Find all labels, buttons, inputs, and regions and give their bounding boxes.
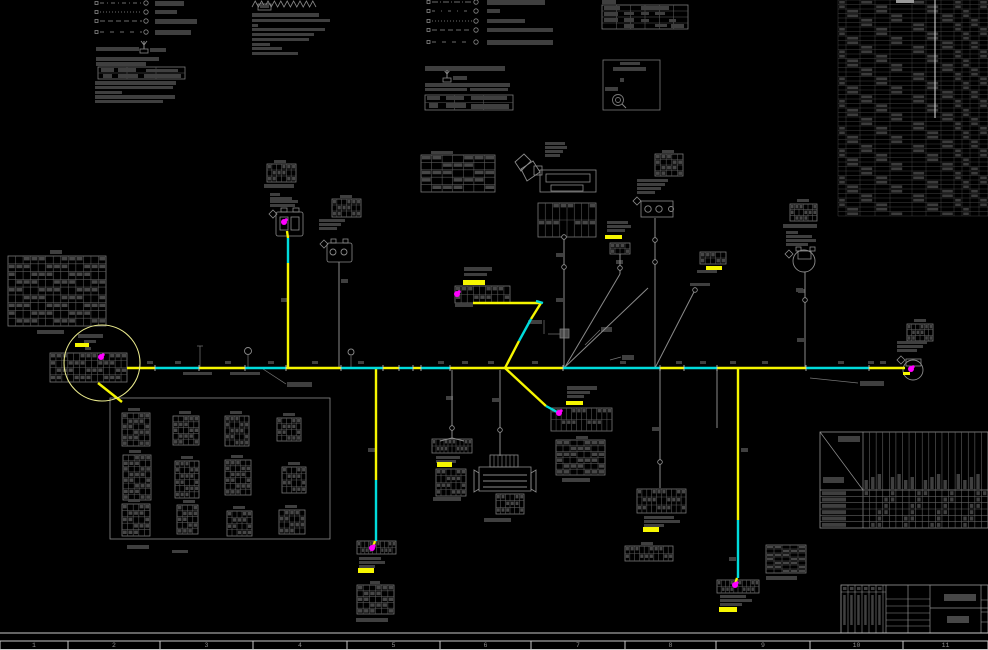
wire-list-cell-text	[861, 118, 872, 121]
pin-table-767-cell-text	[775, 554, 781, 556]
connector-strip-452-cell-text	[469, 440, 471, 444]
relay-grid-283-cell-text	[273, 177, 276, 181]
pin-table-left-cell-text	[84, 265, 90, 269]
pin-matrix-cell	[944, 498, 947, 502]
inline-conn-3-cell-text	[231, 417, 234, 421]
pin-matrix-header-text	[937, 474, 940, 489]
table-556-cell-text	[599, 453, 604, 457]
connector-strip-372-cell-text	[385, 548, 387, 552]
text-redaction-bar	[786, 231, 798, 234]
wire-list-cell-text	[891, 140, 902, 143]
text-redaction-bar	[607, 225, 631, 228]
connector-grid-805-cell-text	[809, 211, 812, 215]
wire-list-cell-text	[891, 37, 902, 40]
wire-list-cell-text	[891, 190, 902, 193]
scale-number: 3	[205, 642, 209, 649]
wire-list-cell-text	[913, 145, 924, 148]
pin-matrix-cell	[891, 498, 894, 502]
pin-matrix-cell	[937, 523, 940, 527]
connector-table-top-cell-text	[432, 171, 441, 175]
pin-matrix-row-label	[822, 504, 846, 508]
wire-list-cell-text	[942, 19, 953, 22]
inline-conn-11-cell-text	[243, 531, 246, 535]
inline-conn-11-cell-text	[238, 518, 241, 522]
title-block-vertical-text	[857, 595, 860, 625]
inline-conn-3-cell-text	[236, 429, 239, 433]
text-redaction-bar	[567, 391, 590, 394]
connector-table-top-cell-text	[475, 156, 484, 160]
connector-table-top-cell-text	[454, 163, 463, 167]
table-556-cell-text	[578, 464, 583, 468]
wire-list-cell-text	[847, 208, 858, 211]
inline-conn-4-cell-text	[288, 425, 291, 429]
connector-grid-805-cell-text	[791, 205, 794, 209]
junction-node	[562, 265, 567, 270]
main-connector-left-cell-text	[116, 376, 120, 380]
pin-table-left-cell-text	[32, 311, 38, 315]
text-redaction-bar	[427, 96, 440, 100]
inline-conn-3-cell-text	[240, 441, 243, 445]
text-redaction-bar	[637, 187, 661, 190]
connector-grid-655-cell-text	[662, 166, 666, 170]
pin-table-left-cell-text	[47, 304, 53, 308]
title-block-vertical-text	[850, 595, 853, 625]
connector-grid-660b-cell-text	[660, 547, 663, 551]
wire-list-cell-text	[942, 163, 953, 166]
pin-matrix-cell	[878, 510, 881, 514]
text-redaction-bar	[179, 411, 191, 414]
pin-table-left-cell-text	[54, 280, 60, 284]
pin-table-767-cell-text	[783, 562, 789, 564]
inline-conn-3-cell-text	[226, 417, 229, 421]
text-redaction-bar	[340, 195, 352, 198]
legend-mid-square-1	[427, 10, 430, 13]
wire-list-cell-text	[963, 158, 969, 161]
inline-conn-10-cell-text	[188, 529, 191, 533]
text-redaction-bar	[118, 74, 138, 78]
wire-list-cell-text	[942, 118, 953, 121]
wire-list-cell-text	[861, 199, 872, 202]
pin-table-left-cell-text	[39, 257, 45, 261]
connector-table-top-cell-text	[485, 171, 494, 175]
wire-list-cell-text	[861, 122, 872, 125]
text-redaction-bar	[655, 24, 667, 27]
bulb-symbol-2	[348, 349, 354, 355]
junction-node	[562, 235, 567, 240]
wire-list-cell-text	[980, 127, 987, 130]
inline-conn-12-cell-text	[301, 523, 304, 527]
pin-matrix-header-text	[871, 477, 874, 489]
text-redaction-bar	[274, 160, 286, 163]
text-redaction-bar	[602, 0, 616, 4]
pin-table-left-cell-text	[99, 280, 105, 284]
inline-conn-6-cell-text	[176, 480, 179, 484]
inline-conn-6-cell-text	[186, 487, 189, 491]
table-556-cell-text	[592, 458, 597, 462]
pin-table-767-cell-text	[799, 546, 805, 548]
inline-conn-7-cell-text	[242, 467, 245, 471]
inline-conn-9-cell-text	[140, 505, 144, 509]
pin-table-left-cell-text	[99, 304, 105, 308]
wire-list-cell-text	[971, 41, 978, 44]
inline-conn-7-cell-text	[236, 461, 239, 465]
inline-conn-10-cell-text	[194, 523, 197, 527]
relay-grid-340-cell-text	[338, 206, 341, 210]
relay-grid-283-cell-text	[287, 165, 290, 169]
speaker-grid-cell-text	[502, 495, 505, 499]
main-connector-left-cell-text	[69, 368, 73, 372]
bus-tick-label	[358, 361, 364, 364]
pin-table-left-cell-text	[77, 272, 83, 276]
pin-table-left-cell-text	[47, 272, 53, 276]
inline-conn-5-cell-text	[146, 484, 150, 488]
wire-list-cell-text	[942, 140, 953, 143]
connector-dot-blob	[458, 290, 461, 293]
junction-node	[618, 266, 623, 271]
inline-conn-2-cell-text	[190, 429, 193, 433]
pin-matrix-cell	[930, 523, 933, 527]
inline-conn-10-cell-text	[178, 518, 181, 522]
wire-list-cell-text	[955, 176, 961, 179]
wire-list-cell-text	[971, 19, 978, 22]
pin-matrix-cell	[917, 491, 920, 495]
pin-table-372-cell-text	[370, 603, 374, 607]
connector-dot-blob	[285, 218, 288, 221]
wire-list-cell-text	[847, 37, 858, 40]
wire-list-cell-text	[980, 77, 987, 80]
scale-number: 10	[853, 642, 861, 649]
inline-conn-8-cell-text	[288, 474, 291, 478]
inline-conn-9-cell-text	[145, 505, 149, 509]
text-redaction-bar	[464, 273, 487, 276]
inline-conn-7-cell-text	[231, 478, 234, 482]
pin-matrix-row-label	[822, 523, 846, 527]
wire-cyan	[519, 319, 531, 341]
wire-list-cell-text	[876, 104, 887, 107]
pin-table-left-cell-text	[32, 272, 38, 276]
pin-table-left-cell-text	[54, 304, 60, 308]
wire-yellow	[287, 231, 288, 238]
bus-tick-label	[225, 361, 231, 364]
table-556-cell-text	[564, 470, 569, 474]
inline-conn-8-cell-text	[302, 468, 305, 472]
wire-list-cell-text	[971, 73, 978, 76]
text-redaction-bar	[641, 6, 669, 10]
connector-strip-738-cell-text	[722, 587, 724, 591]
inline-conn-5-cell-text	[146, 495, 150, 499]
main-connector-left-cell-text	[51, 376, 55, 380]
inline-conn-9-cell-text	[145, 518, 149, 522]
inline-conn-3-cell-text	[226, 435, 229, 439]
connector-table-top-cell-text	[464, 178, 473, 182]
pin-matrix-cell	[963, 517, 966, 521]
pin-matrix-cell	[983, 491, 986, 495]
inline-conn-2-cell-text	[184, 417, 187, 421]
bus-tick-label	[620, 361, 626, 364]
inline-conn-7-cell-text	[247, 478, 250, 482]
speaker-flange-right	[531, 470, 536, 492]
text-redaction-bar	[545, 142, 565, 145]
text-redaction-bar	[720, 595, 746, 598]
inline-conn-1-cell-text	[134, 419, 138, 423]
inline-conn-10-cell-text	[188, 523, 191, 527]
pin-table-left-cell-text	[99, 296, 105, 300]
pin-table-left-cell-text	[16, 265, 22, 269]
text-redaction-bar	[252, 52, 298, 55]
pin-table-left-cell-text	[9, 265, 15, 269]
relay-grid-283-cell-text	[268, 177, 271, 181]
inline-conn-6-cell-text	[186, 493, 189, 497]
wire-list-cell-text	[847, 158, 858, 161]
text-redaction-bar	[85, 347, 91, 350]
pin-table-left-cell-text	[77, 257, 83, 261]
inline-conn-5-cell-text	[130, 473, 134, 477]
wire-list-cell-text	[847, 59, 858, 62]
pin-table-left-cell-text	[62, 304, 68, 308]
text-redaction-bar	[146, 69, 178, 72]
wire-list-cell-text	[971, 140, 978, 143]
inline-conn-11-cell-text	[248, 524, 251, 528]
scale-number: 6	[484, 642, 488, 649]
text-redaction-bar	[288, 462, 300, 465]
inline-conn-11-cell-text	[233, 524, 236, 528]
wire-list-cell-text	[971, 122, 978, 125]
legend-left-circle-0	[144, 1, 148, 5]
wire-list-cell-text	[980, 82, 987, 85]
ecu-pin-grid-cell-text	[553, 221, 558, 225]
legend-left-circle-1	[144, 10, 148, 14]
text-redaction-bar	[556, 298, 563, 302]
inline-conn-7-cell-text	[231, 461, 234, 465]
ecu-pin-grid-cell-text	[539, 221, 544, 225]
wire-list-cell-text	[955, 100, 961, 103]
pin-matrix-header-text	[976, 474, 979, 489]
wire-list-cell-text	[942, 64, 953, 67]
wire-list-cell-text	[847, 86, 858, 89]
connector-grid-611-cell-text	[626, 249, 629, 253]
pin-table-left-cell-text	[24, 257, 30, 261]
wire-list-cell-text	[980, 100, 987, 103]
connector-grid-805-cell-text	[795, 205, 798, 209]
main-connector-left-cell-text	[81, 376, 85, 380]
pin-matrix-cell	[878, 523, 881, 527]
text-redaction-bar	[492, 398, 499, 402]
wire-list-cell-text	[847, 109, 858, 112]
connector-grid-660-cell-text	[643, 498, 646, 502]
wire-list-cell-text	[980, 104, 987, 107]
scale-number: 2	[112, 642, 116, 649]
connector-grid-655-cell-text	[662, 155, 666, 159]
pin-table-767-cell-text	[783, 570, 789, 572]
bulb-symbol-1	[245, 348, 252, 355]
connector-grid-655-cell-text	[662, 171, 666, 175]
connector-strip-738-cell-text	[743, 587, 745, 591]
highlight-marker	[719, 607, 737, 612]
junction-node	[658, 460, 663, 465]
text-redaction-bar	[464, 267, 492, 271]
wire-list-cell-text	[927, 86, 938, 89]
inline-conn-12-cell-text	[280, 517, 283, 521]
main-connector-left-cell-text	[116, 368, 120, 372]
wire-list-cell-text	[955, 55, 961, 58]
main-connector-left-cell-text	[57, 376, 61, 380]
inline-conn-4-cell-text	[297, 436, 300, 440]
relay-283-pin-2	[291, 217, 299, 230]
text-redaction-bar	[230, 372, 260, 375]
wire-list-cell-text	[839, 82, 845, 85]
text-redaction-bar	[155, 1, 184, 6]
pin-matrix-cell	[924, 491, 927, 495]
connector-table-top-cell-text	[475, 178, 484, 182]
scale-number: 9	[761, 642, 765, 649]
inline-conn-6-cell-text	[190, 487, 193, 491]
antenna-base-1	[140, 49, 148, 53]
connector-grid-452b-cell-text	[462, 470, 465, 474]
wire-list-cell-text	[955, 23, 961, 26]
relay-655-term-1	[645, 206, 651, 212]
ecu-pin-grid-cell-text	[568, 204, 573, 208]
inline-conn-10-cell-text	[188, 512, 191, 516]
text-redaction-bar	[914, 319, 926, 322]
main-connector-left-cell-text	[75, 361, 79, 365]
pin-table-left-cell-text	[9, 304, 15, 308]
wire-list-cell-text	[963, 10, 969, 13]
horn-spiral-tail	[622, 104, 626, 108]
inline-conn-11-cell-text	[248, 512, 251, 516]
pin-table-left-cell-text	[99, 265, 105, 269]
wire-list-cell-text	[955, 172, 961, 175]
connector-table-top-cell-text	[485, 156, 494, 160]
inline-conn-1-cell-text	[129, 425, 133, 429]
pin-table-767-cell-text	[775, 546, 781, 548]
legend-left-square-3	[95, 31, 98, 34]
inline-conn-1-cell-text	[123, 414, 127, 418]
wire-list-cell-text	[913, 28, 924, 31]
antenna-base-2	[443, 78, 451, 82]
wire-list-cell-text	[942, 212, 953, 215]
inline-conn-4-cell-text	[283, 430, 286, 434]
connector-dot-blob	[912, 365, 915, 368]
title-block-text	[947, 616, 969, 623]
legend-left-circle-3	[144, 30, 148, 34]
connector-grid-560-cell-text	[562, 420, 565, 424]
bus-tick-label	[175, 361, 181, 364]
bus-tick-label	[676, 361, 682, 364]
text-redaction-bar	[252, 38, 309, 41]
wire-list-cell-text	[971, 46, 978, 49]
text-redaction-bar	[260, 5, 269, 8]
inline-conn-5-cell-text	[141, 495, 145, 499]
inline-conn-9-cell-text	[123, 531, 127, 535]
wire-list-cell-text	[891, 163, 902, 166]
wire-list-cell-text	[891, 19, 902, 22]
pin-table-372-cell-text	[383, 598, 387, 602]
relay-grid-340-cell-text	[338, 212, 341, 216]
pin-table-left-cell-text	[54, 319, 60, 323]
text-redaction-bar	[545, 154, 560, 157]
connector-grid-910-cell-text	[908, 336, 911, 340]
pin-matrix-header-text	[957, 474, 960, 489]
connector-grid-456-cell-text	[462, 287, 466, 291]
table-556-cell-text	[585, 447, 590, 451]
pin-table-left-cell-text	[24, 304, 30, 308]
text-redaction-bar	[78, 334, 103, 338]
pin-table-767-cell-text	[791, 558, 797, 560]
text-redaction-bar	[252, 43, 270, 46]
text-redaction-bar	[429, 103, 438, 108]
connector-grid-700-cell-text	[711, 253, 714, 257]
relay-grid-340-cell-text	[333, 200, 336, 204]
wire-list-cell-text	[963, 64, 969, 67]
inline-conn-7-cell-text	[226, 490, 229, 494]
pin-matrix-header-text	[970, 477, 973, 489]
inline-conn-3-cell-text	[236, 441, 239, 445]
pin-table-767-cell-text	[783, 554, 789, 556]
leader-line	[263, 369, 286, 384]
wiring-diagram: 1234567891011	[0, 0, 988, 650]
inline-conn-9-cell-text	[123, 505, 127, 509]
connector-grid-660-cell-text	[648, 498, 651, 502]
inline-conn-7-cell-text	[247, 467, 250, 471]
inline-conn-2-cell-text	[179, 434, 182, 438]
connector-table-top-cell-text	[443, 186, 452, 190]
inline-conn-9-cell-text	[134, 511, 138, 515]
inline-conn-5-cell-text	[124, 467, 128, 471]
inline-conn-5-cell-text	[135, 456, 139, 460]
inline-conn-8-cell-text	[283, 481, 286, 485]
pin-table-767-cell-text	[783, 550, 789, 552]
inline-conn-8-cell-text	[297, 468, 300, 472]
text-redaction-bar	[604, 18, 618, 22]
connector-grid-660b-cell-text	[626, 547, 629, 551]
inline-conn-1-cell-text	[134, 436, 138, 440]
inline-conn-12-cell-text	[285, 529, 288, 533]
text-redaction-bar	[786, 243, 808, 246]
wire-list-cell-text	[839, 176, 845, 179]
inline-conn-10-cell-text	[178, 506, 181, 510]
wire-list-cell-text	[955, 104, 961, 107]
pin-matrix-cell	[970, 517, 973, 521]
inline-conn-9-cell-text	[129, 518, 133, 522]
connector-grid-611-cell-text	[611, 249, 614, 253]
inline-conn-6-cell-text	[181, 480, 184, 484]
inline-conn-5-cell-text	[135, 462, 139, 466]
wire-list-cell-text	[927, 136, 938, 139]
text-redaction-bar	[150, 48, 166, 52]
bus-tick-label	[268, 361, 274, 364]
inline-conn-2-cell-text	[195, 429, 198, 433]
wire-list-cell-text	[963, 14, 969, 17]
connector-grid-805-cell-text	[795, 216, 798, 220]
bus-tick-label	[880, 361, 886, 364]
wire-list-cell-text	[963, 37, 969, 40]
ecu-inner-bottom	[551, 185, 583, 191]
relay-283-tab-2	[293, 208, 299, 212]
pin-matrix-cell	[976, 491, 979, 495]
inline-conn-11-cell-text	[243, 512, 246, 516]
pin-table-767-cell-text	[767, 554, 773, 556]
wire-list-cell-text	[971, 23, 978, 26]
main-connector-left-cell-text	[122, 354, 126, 358]
wire-list-cell-text	[861, 23, 872, 26]
connector-strip-372-cell-text	[381, 548, 383, 552]
wire-list-cell-text	[847, 190, 858, 193]
wire-list-cell-text	[861, 1, 872, 4]
text-redaction-bar	[252, 19, 330, 22]
connector-grid-452b-cell-text	[442, 470, 445, 474]
wire-list-cell-text	[839, 5, 845, 8]
inline-conn-12-cell-text	[301, 517, 304, 521]
